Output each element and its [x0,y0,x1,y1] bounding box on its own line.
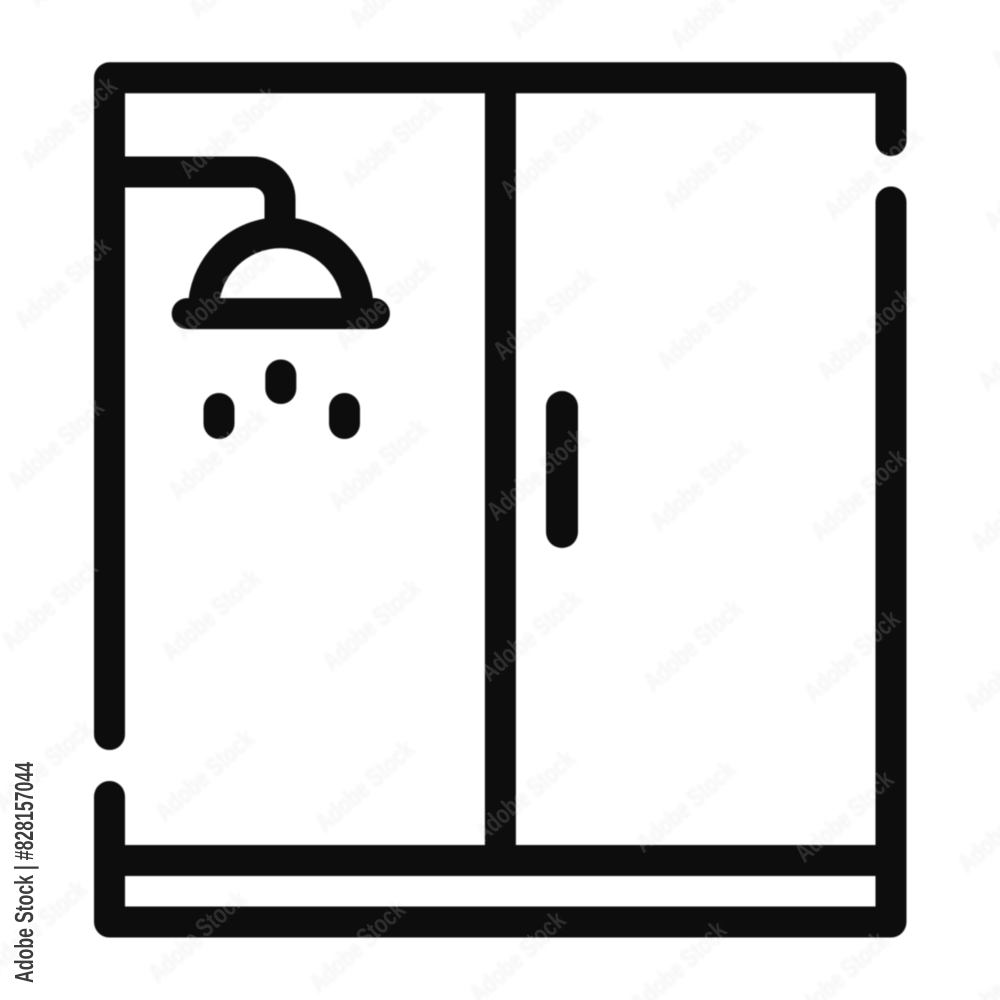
svg-text:Adobe Stock | #828157044: Adobe Stock | #828157044 [9,762,39,983]
